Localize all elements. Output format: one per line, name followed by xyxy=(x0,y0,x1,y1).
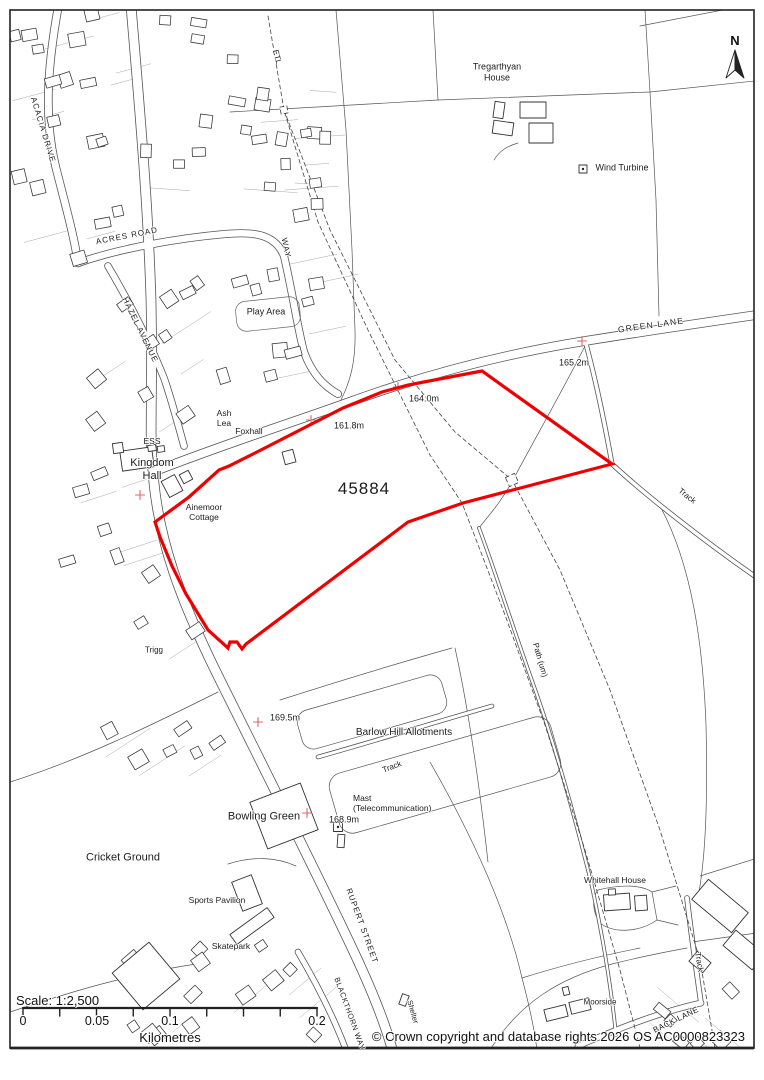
map-page: Tregarthyan HouseWind TurbineETLGREEN LA… xyxy=(0,0,764,1080)
scalebar-tick-3: 0.2 xyxy=(308,1014,325,1028)
scalebar-unit: Kilometres xyxy=(139,1030,200,1045)
scalebar-tick-1: 0.05 xyxy=(85,1014,109,1028)
field-boundaries xyxy=(10,2,764,1050)
north-label: N xyxy=(730,33,739,48)
scalebar-tick-0: 0 xyxy=(20,1014,27,1028)
map-frame xyxy=(10,10,754,1048)
copyright-text: © Crown copyright and database rights 20… xyxy=(372,1029,745,1044)
roads xyxy=(48,6,764,1056)
scalebar-tick-2: 0.1 xyxy=(161,1014,178,1028)
scale-text: Scale: 1:2,500 xyxy=(16,993,99,1008)
site-boundary-outline xyxy=(155,371,612,649)
map-linework xyxy=(0,0,764,1080)
etl-dashed-lines xyxy=(268,16,715,1048)
north-arrow-icon xyxy=(726,50,744,78)
